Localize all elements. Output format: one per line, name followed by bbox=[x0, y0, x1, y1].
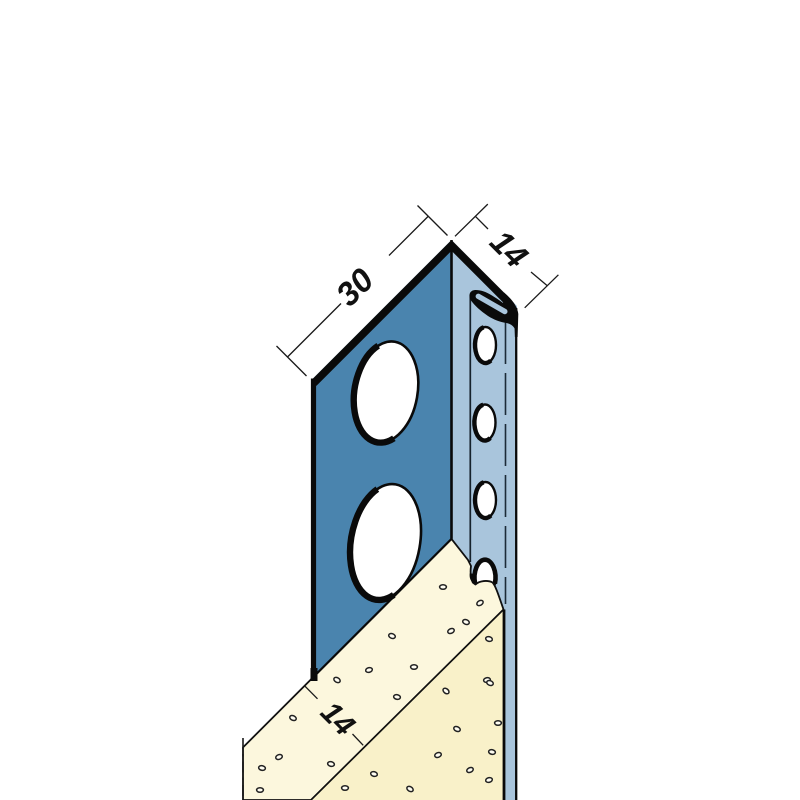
svg-text:14: 14 bbox=[483, 223, 535, 275]
svg-text:30: 30 bbox=[329, 260, 382, 313]
